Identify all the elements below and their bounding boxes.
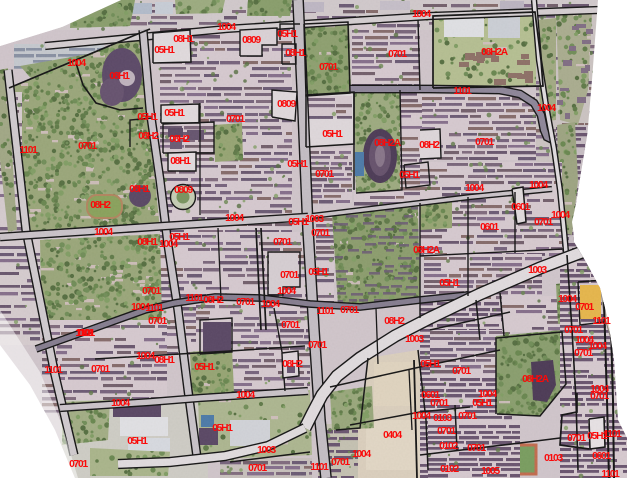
svg-text:1101: 1101 — [77, 328, 96, 339]
svg-text:0102: 0102 — [440, 464, 459, 475]
svg-text:0601: 0601 — [511, 202, 530, 213]
svg-text:1101: 1101 — [44, 365, 63, 376]
svg-text:1004: 1004 — [136, 351, 155, 362]
svg-text:0701: 0701 — [148, 316, 167, 327]
svg-text:08H2: 08H2 — [282, 359, 303, 370]
svg-text:0701: 0701 — [315, 169, 334, 180]
svg-text:05H1: 05H1 — [277, 29, 298, 40]
svg-text:1101: 1101 — [185, 293, 204, 304]
svg-text:08H2: 08H2 — [169, 134, 190, 145]
svg-text:1101: 1101 — [19, 145, 38, 156]
svg-text:05H1: 05H1 — [137, 112, 158, 123]
svg-text:0601: 0601 — [480, 222, 499, 233]
svg-text:0701: 0701 — [69, 459, 88, 470]
svg-text:0701: 0701 — [475, 137, 494, 148]
svg-text:1003: 1003 — [405, 334, 424, 345]
svg-text:0701: 0701 — [340, 305, 359, 316]
svg-text:0701: 0701 — [308, 340, 327, 351]
svg-text:0601: 0601 — [592, 451, 611, 462]
svg-text:0701: 0701 — [280, 270, 299, 281]
svg-text:05H1: 05H1 — [164, 108, 185, 119]
svg-text:08H1: 08H1 — [285, 48, 306, 59]
svg-text:1004: 1004 — [225, 213, 244, 224]
svg-text:05H1: 05H1 — [287, 159, 308, 170]
svg-text:08H2: 08H2 — [90, 200, 111, 211]
svg-text:1005: 1005 — [481, 466, 500, 477]
svg-text:1004: 1004 — [412, 411, 431, 422]
svg-text:1004: 1004 — [67, 58, 86, 69]
svg-text:05H1: 05H1 — [472, 398, 493, 409]
svg-text:1101: 1101 — [603, 429, 622, 440]
svg-text:08H2: 08H2 — [384, 316, 405, 327]
svg-text:0701: 0701 — [248, 463, 267, 474]
svg-text:1004: 1004 — [465, 183, 484, 194]
svg-text:1004: 1004 — [236, 390, 255, 401]
svg-text:1101: 1101 — [310, 462, 329, 473]
svg-text:0701: 0701 — [281, 320, 300, 331]
svg-text:05H1: 05H1 — [322, 129, 343, 140]
svg-text:08H1: 08H1 — [129, 184, 150, 195]
svg-text:0809: 0809 — [174, 185, 193, 196]
svg-text:08H2A: 08H2A — [374, 138, 402, 149]
svg-text:1101: 1101 — [453, 86, 472, 97]
svg-text:05H1: 05H1 — [169, 232, 190, 243]
svg-text:0701: 0701 — [534, 217, 553, 228]
svg-text:0701: 0701 — [319, 62, 338, 73]
svg-text:0701: 0701 — [388, 49, 407, 60]
svg-text:08H2: 08H2 — [203, 295, 224, 306]
svg-text:08H1: 08H1 — [137, 237, 158, 248]
svg-text:1101: 1101 — [145, 303, 164, 314]
svg-text:0103: 0103 — [433, 413, 452, 424]
svg-text:0103: 0103 — [544, 453, 563, 464]
svg-text:1003: 1003 — [305, 214, 324, 225]
svg-text:1101: 1101 — [601, 469, 620, 478]
svg-text:08H1: 08H1 — [154, 355, 175, 366]
svg-text:08H2A: 08H2A — [522, 374, 550, 385]
svg-text:05H1: 05H1 — [194, 362, 215, 373]
svg-text:1101: 1101 — [316, 306, 335, 317]
svg-text:1003: 1003 — [257, 445, 276, 456]
svg-text:05H1: 05H1 — [154, 45, 175, 56]
svg-text:0404: 0404 — [383, 430, 402, 441]
svg-text:1004: 1004 — [261, 299, 280, 310]
svg-text:0701: 0701 — [437, 426, 456, 437]
svg-text:08H2: 08H2 — [419, 140, 440, 151]
svg-text:0701: 0701 — [567, 433, 586, 444]
svg-text:08H1: 08H1 — [109, 71, 130, 82]
svg-text:0701: 0701 — [311, 228, 330, 239]
svg-text:0701: 0701 — [331, 457, 350, 468]
svg-text:1004: 1004 — [277, 286, 296, 297]
svg-text:0102: 0102 — [439, 441, 458, 452]
svg-text:08H1: 08H1 — [170, 156, 191, 167]
svg-text:05H1: 05H1 — [439, 278, 460, 289]
svg-text:0701: 0701 — [574, 348, 593, 359]
svg-text:0701: 0701 — [273, 237, 292, 248]
svg-text:0701: 0701 — [226, 114, 245, 125]
svg-text:0701: 0701 — [78, 141, 97, 152]
svg-text:1004: 1004 — [412, 9, 431, 20]
svg-text:1004: 1004 — [352, 449, 371, 460]
svg-text:0701: 0701 — [430, 398, 449, 409]
svg-text:1101: 1101 — [592, 316, 611, 327]
svg-text:1003: 1003 — [528, 265, 547, 276]
svg-text:05H1: 05H1 — [399, 170, 420, 181]
svg-text:0701: 0701 — [236, 297, 255, 308]
svg-text:05H1: 05H1 — [420, 359, 441, 370]
svg-text:0701: 0701 — [467, 443, 486, 454]
svg-text:0701: 0701 — [575, 302, 594, 313]
svg-text:1004: 1004 — [94, 227, 113, 238]
svg-text:08H1: 08H1 — [173, 34, 194, 45]
svg-text:08H2A: 08H2A — [413, 245, 441, 256]
svg-text:0701: 0701 — [590, 391, 609, 402]
svg-text:1004: 1004 — [529, 180, 548, 191]
svg-text:1004: 1004 — [551, 210, 570, 221]
svg-text:1004: 1004 — [111, 398, 130, 409]
svg-text:1004: 1004 — [537, 103, 556, 114]
svg-text:05H1: 05H1 — [288, 217, 309, 228]
svg-text:0701: 0701 — [142, 286, 161, 297]
svg-text:1004: 1004 — [217, 22, 236, 33]
svg-text:08H2: 08H2 — [138, 131, 159, 142]
svg-text:0701: 0701 — [91, 364, 110, 375]
svg-text:08H2A: 08H2A — [481, 47, 509, 58]
svg-text:05H1: 05H1 — [212, 423, 233, 434]
svg-text:0809: 0809 — [242, 35, 261, 46]
svg-text:05H1: 05H1 — [308, 267, 329, 278]
svg-text:0701: 0701 — [452, 366, 471, 377]
svg-text:0809: 0809 — [277, 99, 296, 110]
svg-text:05H1: 05H1 — [127, 436, 148, 447]
svg-text:0701: 0701 — [458, 411, 477, 422]
